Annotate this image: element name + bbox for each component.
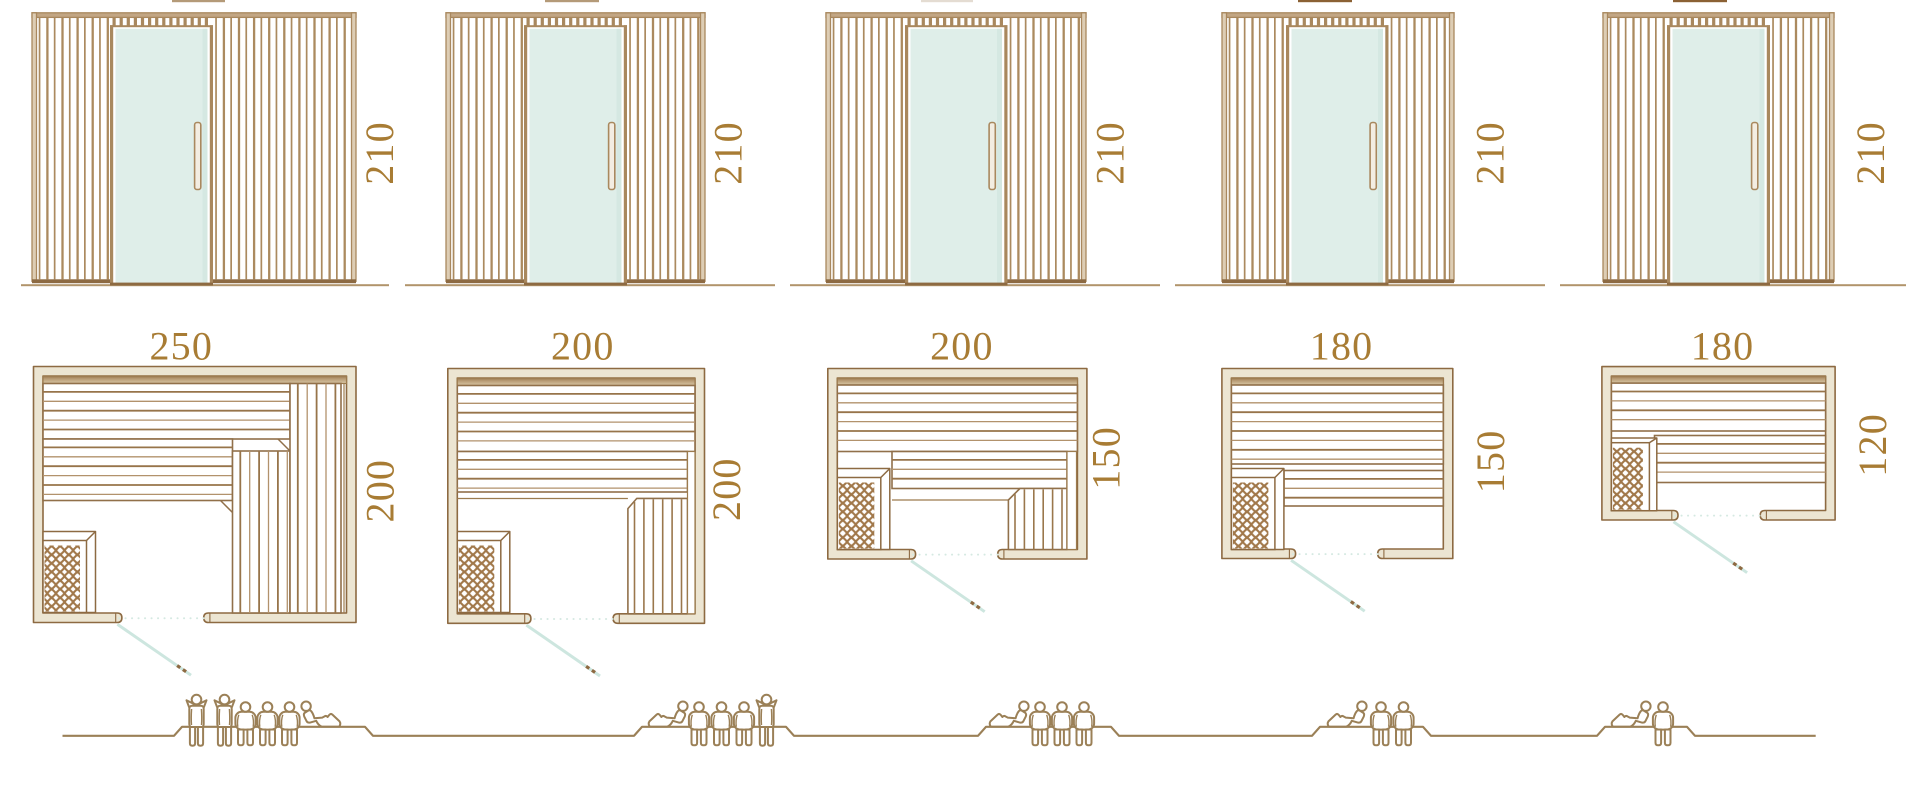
svg-text:210: 210 [705,121,750,185]
svg-text:150: 150 [1468,430,1513,494]
svg-text:120: 120 [1850,413,1895,477]
svg-text:200: 200 [704,457,749,521]
svg-text:180: 180 [1691,324,1755,369]
svg-text:210: 210 [1468,121,1513,185]
svg-text:250: 250 [149,324,213,369]
svg-text:200: 200 [551,324,615,369]
svg-text:210: 210 [1848,121,1893,185]
svg-text:200: 200 [358,459,403,523]
svg-text:180: 180 [1310,324,1374,369]
svg-text:210: 210 [357,121,402,185]
svg-text:200: 200 [930,324,994,369]
svg-text:210: 210 [1087,121,1132,185]
svg-text:150: 150 [1084,426,1129,490]
